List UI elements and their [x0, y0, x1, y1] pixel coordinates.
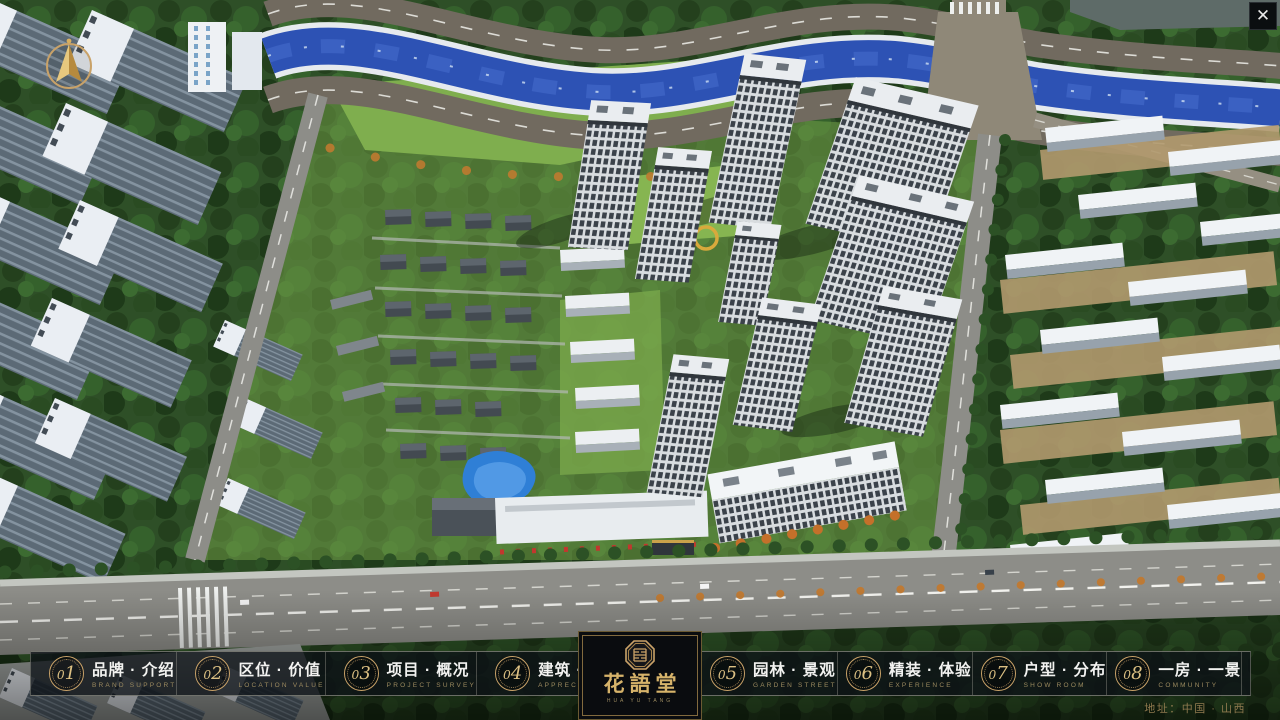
nav-item-brand-intro[interactable]: 01 品牌 · 介绍 BRAND SUPPORT [31, 652, 177, 695]
nav-label: 品牌 · 介绍 [92, 658, 176, 680]
nav-sublabel: LOCATION VALUE [238, 682, 324, 689]
nav-sublabel: SHOW ROOM [1024, 682, 1107, 689]
nav-label: 户型 · 分布 [1024, 658, 1107, 680]
nav-item-garden-landscape[interactable]: 05 园林 · 景观 GARDEN STREET [702, 652, 838, 695]
nav-item-unit-distribution[interactable]: 07 户型 · 分布 SHOW ROOM [973, 652, 1108, 695]
project-address: 地址：中国 · 山西 [1144, 700, 1246, 716]
nav-sublabel: COMMUNITY [1158, 682, 1241, 689]
nav-spacer [1242, 652, 1280, 695]
nav-label: 项目 · 概况 [387, 658, 476, 680]
app-window: { "app": { "close_glyph": "✕" }, "nav": … [0, 0, 1280, 720]
brand-logo-panel[interactable]: 花語堂 HUA YU TANG [578, 631, 702, 720]
nav-number-badge: 07 [981, 656, 1016, 691]
nav-sublabel: GARDEN STREET [753, 682, 837, 689]
nav-sublabel: BRAND SUPPORT [92, 682, 176, 689]
nav-item-project-survey[interactable]: 03 项目 · 概况 PROJECT SURVEY [326, 652, 477, 695]
nav-label: 精装 · 体验 [889, 658, 972, 680]
site-aerial-render[interactable] [0, 0, 1280, 720]
bottom-nav-bar-left: 01 品牌 · 介绍 BRAND SUPPORT 02 区位 · 价值 LOCA… [30, 651, 578, 696]
nav-sublabel: PROJECT SURVEY [387, 682, 476, 689]
nav-label: 园林 · 景观 [753, 658, 837, 680]
compass-icon [40, 34, 98, 94]
bottom-nav-bar-right: 05 园林 · 景观 GARDEN STREET 06 精装 · 体验 EXPE… [702, 651, 1251, 696]
nav-number-badge: 05 [710, 656, 745, 691]
nav-number-badge: 04 [495, 656, 530, 691]
nav-item-interior-experience[interactable]: 06 精装 · 体验 EXPERIENCE [838, 652, 973, 695]
nav-number-badge: 03 [344, 656, 379, 691]
nav-item-location-value[interactable]: 02 区位 · 价值 LOCATION VALUE [177, 652, 325, 695]
nav-item-room-view[interactable]: 08 一房 · 一景 COMMUNITY [1107, 652, 1242, 695]
nav-label: 区位 · 价值 [238, 658, 324, 680]
nav-number-badge: 06 [846, 656, 881, 691]
nav-sublabel: EXPERIENCE [889, 682, 972, 689]
nav-label: 一房 · 一景 [1158, 658, 1241, 680]
nav-number-badge: 01 [49, 656, 84, 691]
logo-inner-border [582, 635, 698, 716]
nav-number-badge: 02 [195, 656, 230, 691]
close-button[interactable]: ✕ [1249, 2, 1277, 30]
nav-number-badge: 08 [1115, 656, 1150, 691]
